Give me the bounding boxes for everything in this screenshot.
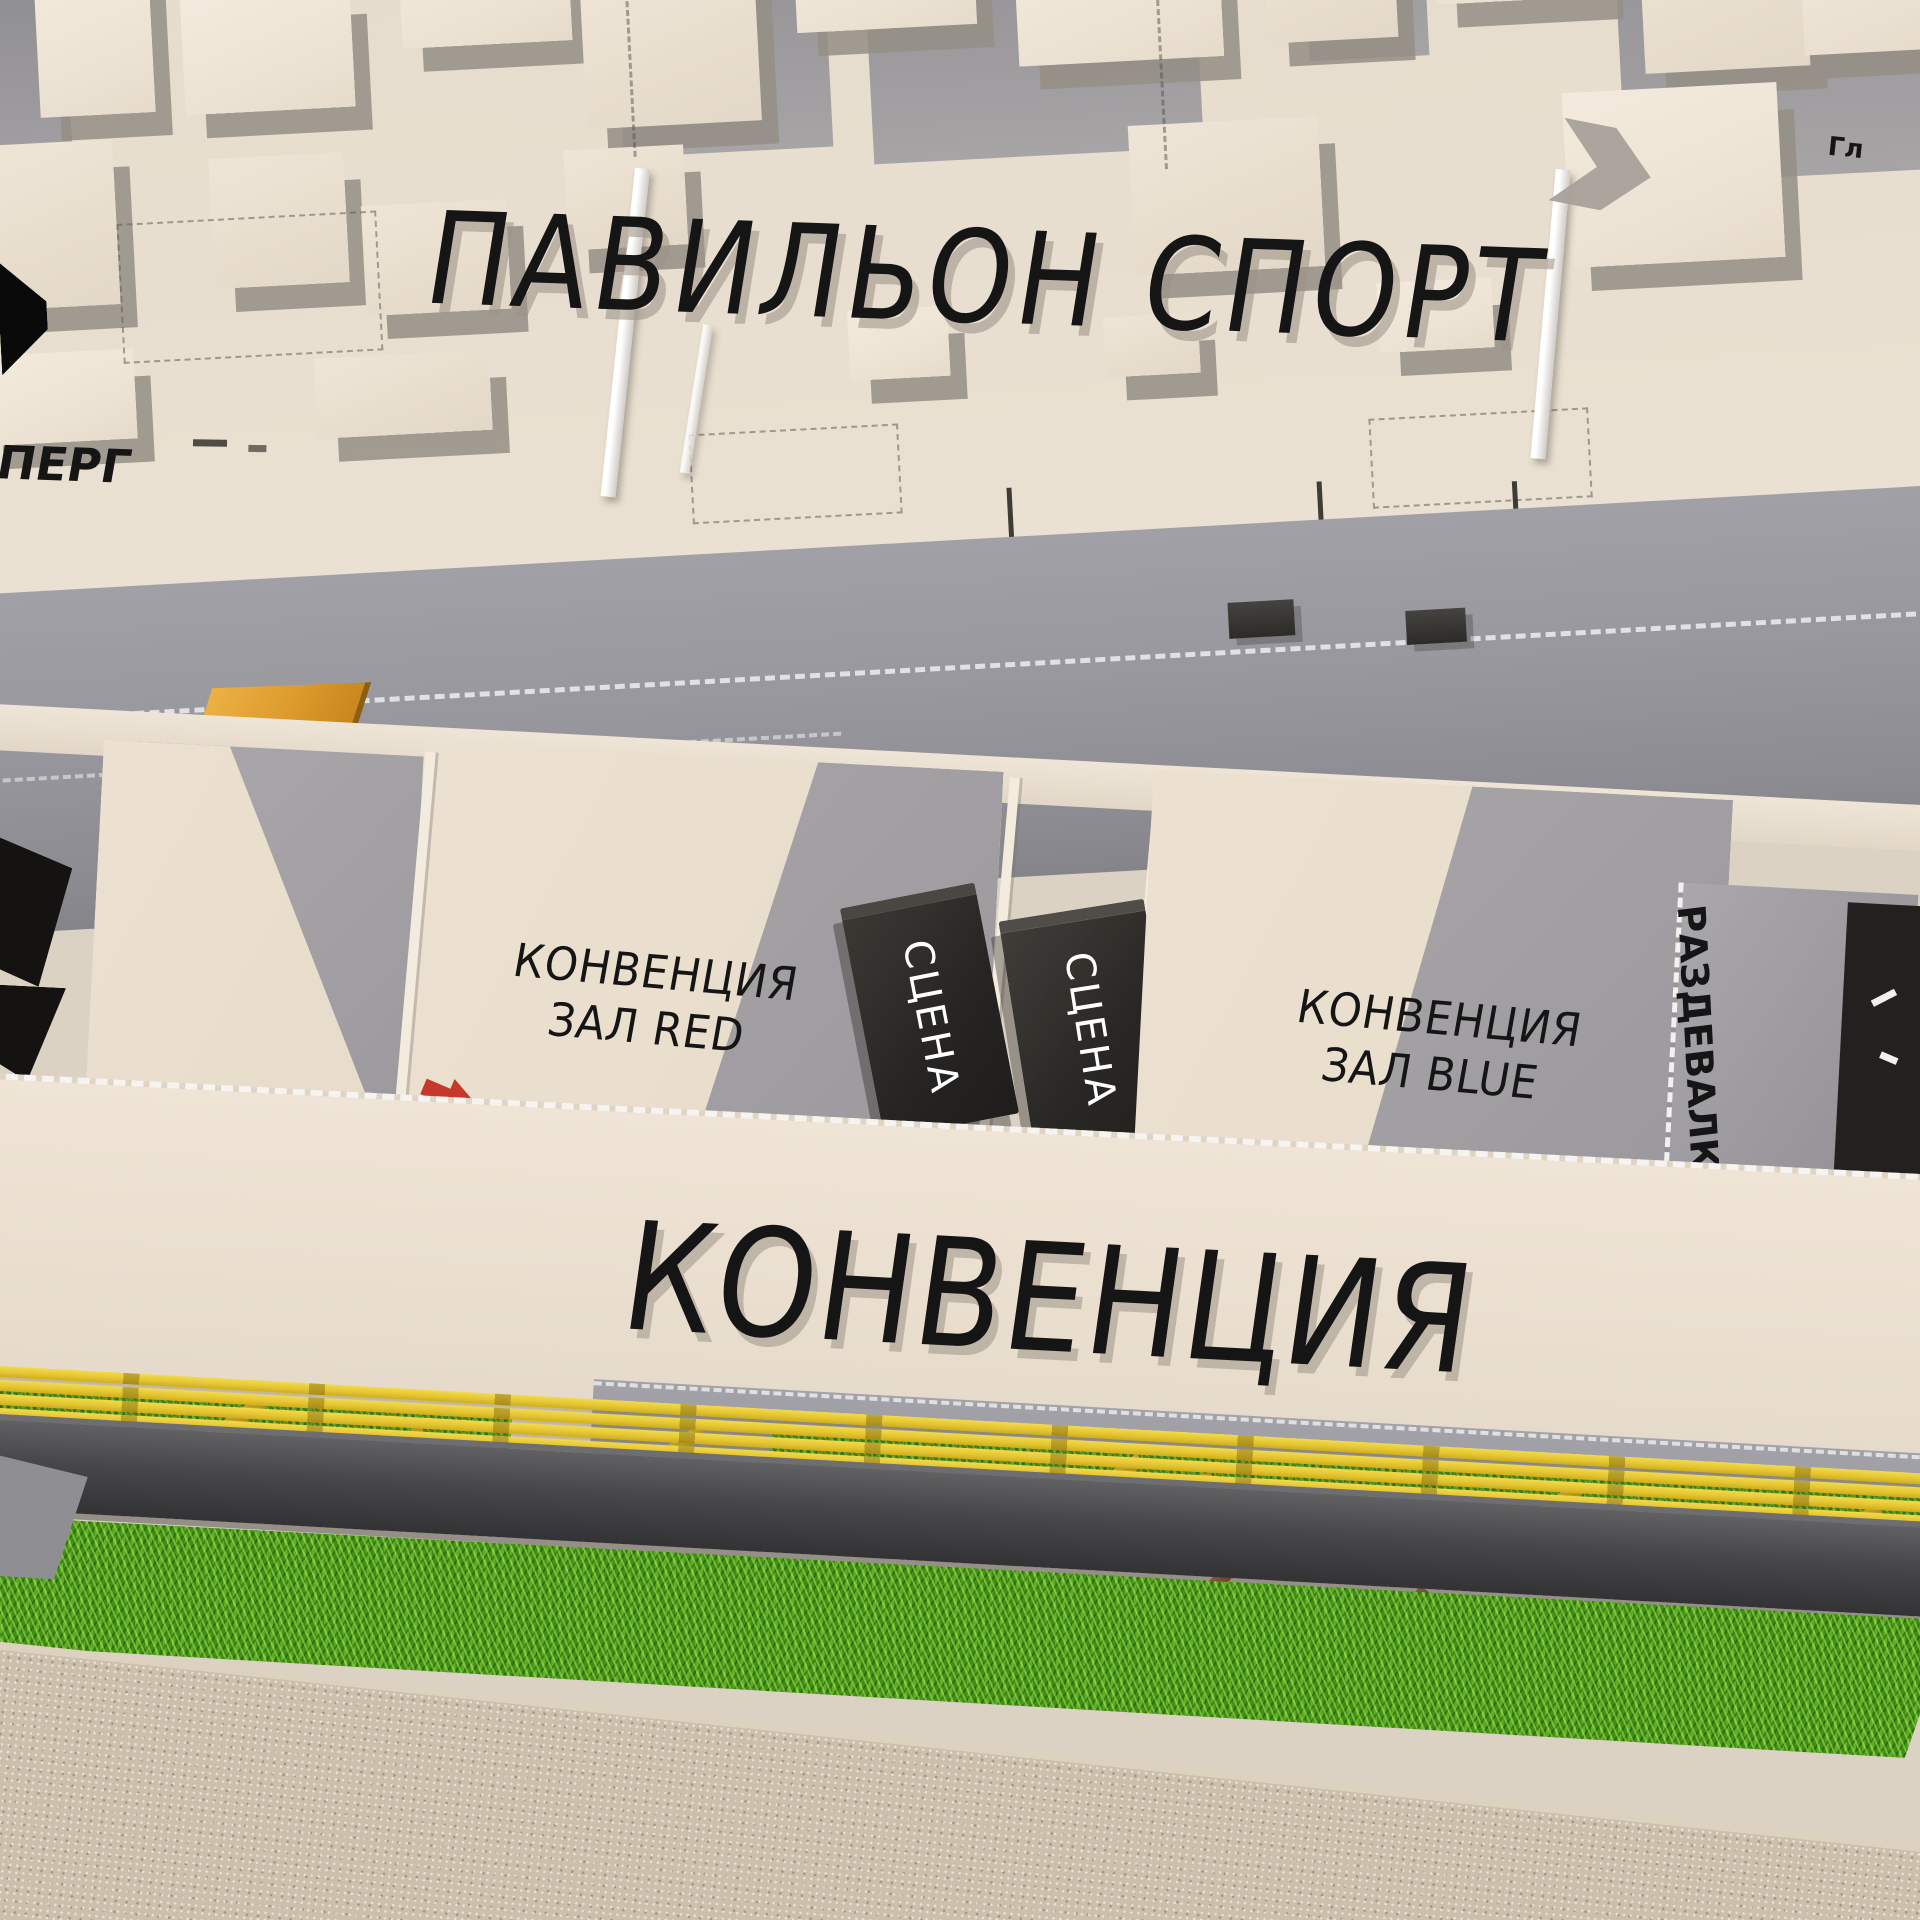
booth-box	[33, 0, 156, 118]
booth-box	[1638, 0, 1811, 74]
road-object-box	[1227, 599, 1295, 639]
venue-3d-map: ПАВИЛЬОН СПОРТ ПЕРГ Гл КОНВЕНЦИЯ ЗАЛ RED	[0, 0, 1920, 1920]
white-mark	[1871, 989, 1897, 1007]
dark-block-right-edge	[1834, 902, 1920, 1178]
faded-letter-mark	[193, 439, 227, 447]
hall-blue-floor-shadow	[1135, 770, 1734, 1170]
booth-box	[0, 348, 138, 446]
partial-label-top-right: Гл	[1826, 132, 1865, 166]
booth-box	[314, 350, 493, 439]
booth-box	[1430, 0, 1606, 5]
dark-structure	[0, 823, 74, 989]
white-mark	[1879, 1051, 1898, 1064]
locker-room-label: РАЗДЕВАЛК	[1669, 902, 1727, 1172]
booth-box	[1012, 0, 1224, 67]
booth-box	[180, 0, 356, 115]
partial-label-left: ПЕРГ	[0, 435, 135, 493]
road-object-box	[1405, 608, 1467, 645]
stage-right-label: СЦЕНА	[1055, 949, 1125, 1111]
booth-outline-mark	[1368, 407, 1592, 508]
pavilion-sport-label: ПАВИЛЬОН СПОРТ	[416, 185, 1556, 372]
faded-letter-mark	[248, 445, 266, 452]
booth-box	[1263, 0, 1399, 44]
dark-structure	[0, 984, 66, 1083]
booth-box	[397, 0, 573, 49]
booth-outline-mark	[116, 210, 383, 363]
booth-box	[579, 0, 762, 129]
stage-left-label: СЦЕНА	[893, 935, 968, 1098]
booth-outline-mark	[688, 423, 902, 524]
hall-blue-floor	[1135, 770, 1734, 1170]
booth-box	[1795, 0, 1920, 55]
